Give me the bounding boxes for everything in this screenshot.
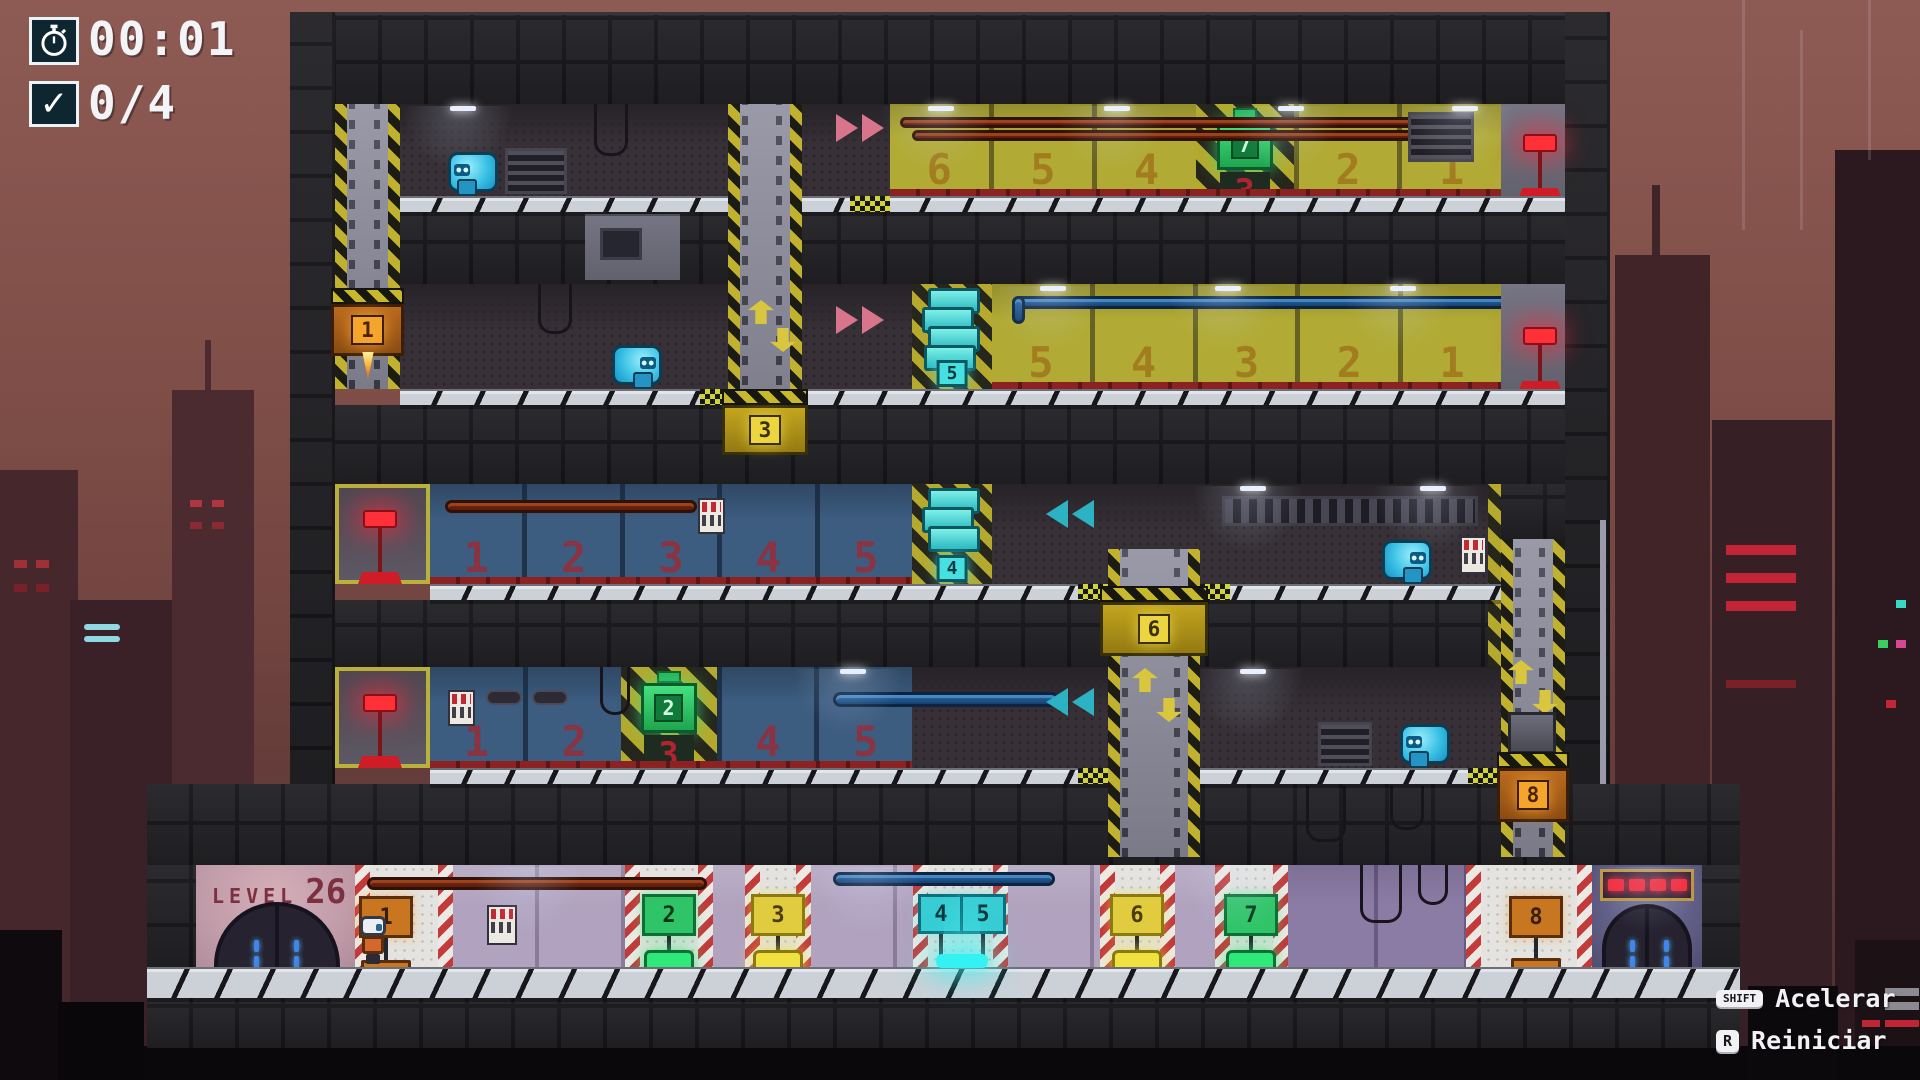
door-light — [294, 940, 299, 952]
light-glow — [1226, 106, 1346, 178]
elevator-platform-3[interactable]: 3 — [722, 389, 808, 455]
player-head — [360, 916, 386, 936]
city-window-row — [1726, 573, 1796, 583]
city-window — [190, 522, 202, 529]
game-screen: 6 5 4 7 3 2 1 5 5 4 3 2 — [0, 0, 1920, 1080]
floor-slab — [1200, 584, 1501, 600]
floor-slab — [1200, 768, 1501, 784]
floor-slab — [400, 196, 728, 212]
city-antenna — [205, 340, 211, 390]
shift-keycap: SHIFT — [1716, 990, 1763, 1007]
platform-body: 6 — [1100, 602, 1208, 656]
crate-column: 5 — [912, 284, 992, 389]
floor-band — [1501, 484, 1565, 539]
door-split — [275, 906, 279, 967]
door-light — [254, 940, 259, 952]
light-glow — [1588, 867, 1708, 939]
call-station-8[interactable]: 8 — [1512, 896, 1560, 977]
ceiling-light — [1040, 286, 1066, 291]
ceiling-light — [840, 669, 866, 674]
player-legs — [366, 954, 380, 964]
light-glow — [1178, 867, 1298, 939]
station-stem — [667, 936, 671, 950]
station-stem — [1135, 936, 1139, 950]
ceiling-light — [1240, 486, 1266, 491]
station-stem — [1534, 938, 1538, 958]
hanging-cable — [1418, 865, 1448, 905]
ceiling-light — [1420, 486, 1446, 491]
elevator-platform-6[interactable]: 6 — [1100, 586, 1208, 656]
baseboard — [992, 382, 1501, 389]
timer-box — [29, 17, 79, 65]
floor-band — [335, 405, 1565, 484]
red-lamp — [358, 510, 402, 584]
city-window — [14, 584, 27, 592]
baseboard — [890, 189, 1501, 196]
timer-value: 00:01 — [88, 12, 236, 66]
city-window-row — [1726, 680, 1796, 688]
hanging-cable — [1360, 865, 1402, 923]
robot-body — [1403, 567, 1423, 584]
robot-eyes-icon — [1410, 552, 1426, 564]
station-sign: 3 — [751, 894, 805, 936]
r-keycap: R — [1716, 1030, 1739, 1052]
hint-accelerate: SHIFT Acelerar — [1716, 984, 1896, 1013]
ceiling-light — [1278, 106, 1304, 111]
red-lamp-stand — [1538, 345, 1542, 381]
elevator-platform-1[interactable]: 1 — [331, 288, 404, 356]
city-window — [190, 500, 202, 507]
crate-marker[interactable]: 5 — [937, 360, 968, 387]
room-number-panel: 2 — [522, 484, 619, 584]
floor-slab — [430, 584, 1108, 600]
platform-body: 8 — [1497, 768, 1569, 822]
conveyor-arrow-right-icon — [836, 306, 858, 334]
red-lamp-stand — [378, 528, 382, 572]
platform-body: 1 — [331, 304, 404, 356]
ground-bottom-band — [147, 998, 1740, 1048]
battery-pickup[interactable]: 2 — [641, 671, 697, 733]
robot-eyes-icon — [1406, 736, 1422, 748]
station-stem — [776, 936, 780, 950]
city-window — [212, 500, 224, 507]
player-visor-icon — [376, 924, 382, 931]
cyan-crate — [928, 526, 980, 552]
light-streak — [1800, 30, 1803, 230]
robot[interactable] — [616, 345, 664, 389]
city-neon-dot — [1878, 640, 1888, 648]
wall-fixture — [532, 690, 568, 705]
ceiling-light — [928, 106, 954, 111]
warning-poster — [698, 498, 725, 534]
poster-stripe — [702, 502, 721, 512]
station-sign: 6 — [1110, 894, 1164, 936]
checker-strip — [1468, 768, 1498, 784]
battery-tab-icon — [657, 671, 681, 683]
red-lamp-head — [363, 510, 397, 528]
red-stripe-edge — [1466, 865, 1481, 967]
light-streak — [1742, 0, 1745, 230]
city-window — [36, 560, 49, 568]
red-lamp-head — [363, 694, 397, 712]
room-number-panel: 1 — [430, 667, 523, 768]
ceiling-light — [1215, 286, 1241, 291]
light-glow — [788, 669, 908, 741]
conveyor-arrow-left-icon — [1072, 688, 1094, 716]
platform-rail — [1497, 752, 1569, 768]
city-neon-dot — [1896, 600, 1906, 608]
conveyor-arrow-right-icon — [836, 114, 858, 142]
room-number-panel: 5 — [815, 484, 912, 584]
ceiling-light — [1452, 106, 1478, 111]
wall-trim — [1600, 520, 1606, 784]
baseboard — [430, 577, 912, 584]
city-window-row — [1726, 601, 1796, 611]
objective-value: 0/4 — [88, 76, 177, 130]
platform-rail — [1100, 586, 1208, 602]
hanging-cable — [600, 667, 630, 715]
conveyor-arrow-left-icon — [1072, 500, 1094, 528]
light-glow — [988, 286, 1108, 358]
conveyor-arrow-right-icon — [862, 306, 884, 334]
station-sign: 8 — [1509, 896, 1563, 938]
light-glow — [1400, 106, 1520, 178]
light-streak — [1868, 0, 1871, 160]
warning-poster — [448, 690, 475, 726]
city-foreground-building — [58, 1002, 144, 1080]
city-antenna — [1652, 185, 1660, 255]
city-foreground-strip — [0, 1046, 1920, 1080]
robot-body — [457, 179, 477, 196]
wall-vent — [1318, 722, 1372, 766]
light-glow — [1338, 286, 1458, 358]
city-window-row — [1885, 1020, 1919, 1027]
checker-strip — [1078, 768, 1108, 784]
light-glow — [468, 867, 588, 939]
hanging-cable — [594, 104, 628, 156]
city-window — [36, 584, 49, 592]
robot-body — [1409, 751, 1429, 768]
light-glow — [1052, 106, 1172, 178]
battery-box: 2 — [641, 683, 697, 733]
platform-rail — [331, 288, 404, 304]
hazard-column: 2 3 — [621, 667, 717, 768]
light-glow — [1188, 486, 1308, 558]
city-window — [14, 560, 27, 568]
level-number: 26 — [305, 872, 346, 912]
light-glow — [1163, 286, 1283, 358]
poster-grid — [702, 515, 721, 526]
conveyor-arrow-left-icon — [1046, 500, 1068, 528]
red-lamp-head — [1523, 134, 1557, 152]
red-lamp-base — [358, 572, 402, 584]
hint-restart: R Reiniciar — [1716, 1026, 1887, 1055]
floor3-numbered-rooms: 1 2 3 4 5 — [430, 484, 912, 584]
city-foreground-building — [0, 930, 62, 1080]
objective-box: ✓ — [29, 81, 79, 127]
wall-fixture — [486, 690, 522, 705]
platform-body: 3 — [722, 405, 808, 455]
robot-eyes-icon — [640, 357, 656, 369]
floor-slab — [802, 389, 1565, 405]
baseboard — [430, 761, 912, 768]
red-lamp-head — [1523, 327, 1557, 345]
ceiling-light — [450, 106, 476, 111]
city-neon-dot — [1886, 700, 1896, 708]
elevator-platform-8[interactable]: 8 — [1497, 752, 1569, 822]
ground-slab — [147, 967, 1740, 998]
stopwatch-icon — [40, 24, 68, 58]
poster-stripe — [452, 694, 471, 704]
conveyor-arrow-left-icon — [1046, 688, 1068, 716]
crate-marker[interactable]: 4 — [937, 555, 968, 582]
hanging-cable — [1390, 786, 1424, 830]
light-glow — [808, 867, 928, 939]
platform-rail — [722, 389, 808, 405]
metal-crate — [1508, 712, 1556, 754]
building-top-band — [290, 12, 1610, 104]
door-light — [1664, 940, 1669, 952]
floor-band — [335, 212, 1565, 284]
poster-grid — [452, 707, 471, 718]
city-building — [1615, 255, 1710, 785]
city-neon-dot — [1896, 640, 1906, 648]
light-glow — [876, 106, 996, 178]
ceiling-light — [1104, 106, 1130, 111]
red-lamp — [358, 694, 402, 768]
city-window — [212, 522, 224, 529]
robot[interactable] — [1386, 540, 1434, 584]
red-lamp-stand — [378, 712, 382, 756]
city-neon-marks — [84, 636, 120, 642]
room-number-panel: 4 — [717, 484, 814, 584]
player-character[interactable] — [352, 916, 394, 966]
robot-eyes-icon — [454, 164, 470, 176]
ceiling-light — [1240, 669, 1266, 674]
hanging-cable — [538, 284, 572, 334]
red-lamp-stand — [1538, 152, 1542, 188]
checker-strip — [850, 196, 890, 212]
city-window-row — [1726, 545, 1796, 555]
teleport-pad[interactable] — [936, 954, 988, 968]
robot[interactable] — [1398, 724, 1446, 768]
door-light — [1630, 940, 1635, 952]
ground-edge — [147, 865, 196, 967]
red-lamp-base — [358, 756, 402, 768]
floor-slab — [430, 768, 1108, 784]
crate-column: 4 — [912, 484, 992, 584]
check-icon: ✓ — [40, 84, 69, 124]
station-sign: 2 — [642, 894, 696, 936]
ground-panel — [713, 865, 745, 967]
hint-label: Reiniciar — [1751, 1026, 1886, 1055]
monitor — [600, 228, 642, 260]
ceiling-light — [1390, 286, 1416, 291]
teleport-beam — [944, 886, 980, 956]
robot-body — [633, 372, 653, 389]
light-glow — [1188, 669, 1308, 741]
floor-band — [335, 600, 1565, 667]
room-number-panel: 1 — [430, 484, 522, 584]
hanging-cable — [1306, 786, 1346, 842]
red-lamp — [1518, 327, 1562, 393]
red-lamp — [1518, 134, 1562, 200]
floor2-room — [802, 284, 912, 389]
player-body — [362, 936, 384, 954]
floor-slab — [802, 196, 1565, 212]
building-left-wall — [290, 12, 335, 790]
conveyor-red — [445, 500, 697, 513]
hint-label: Acelerar — [1775, 984, 1895, 1013]
robot[interactable] — [446, 152, 494, 196]
city-neon-marks — [84, 624, 120, 630]
floor-slab — [400, 389, 728, 405]
